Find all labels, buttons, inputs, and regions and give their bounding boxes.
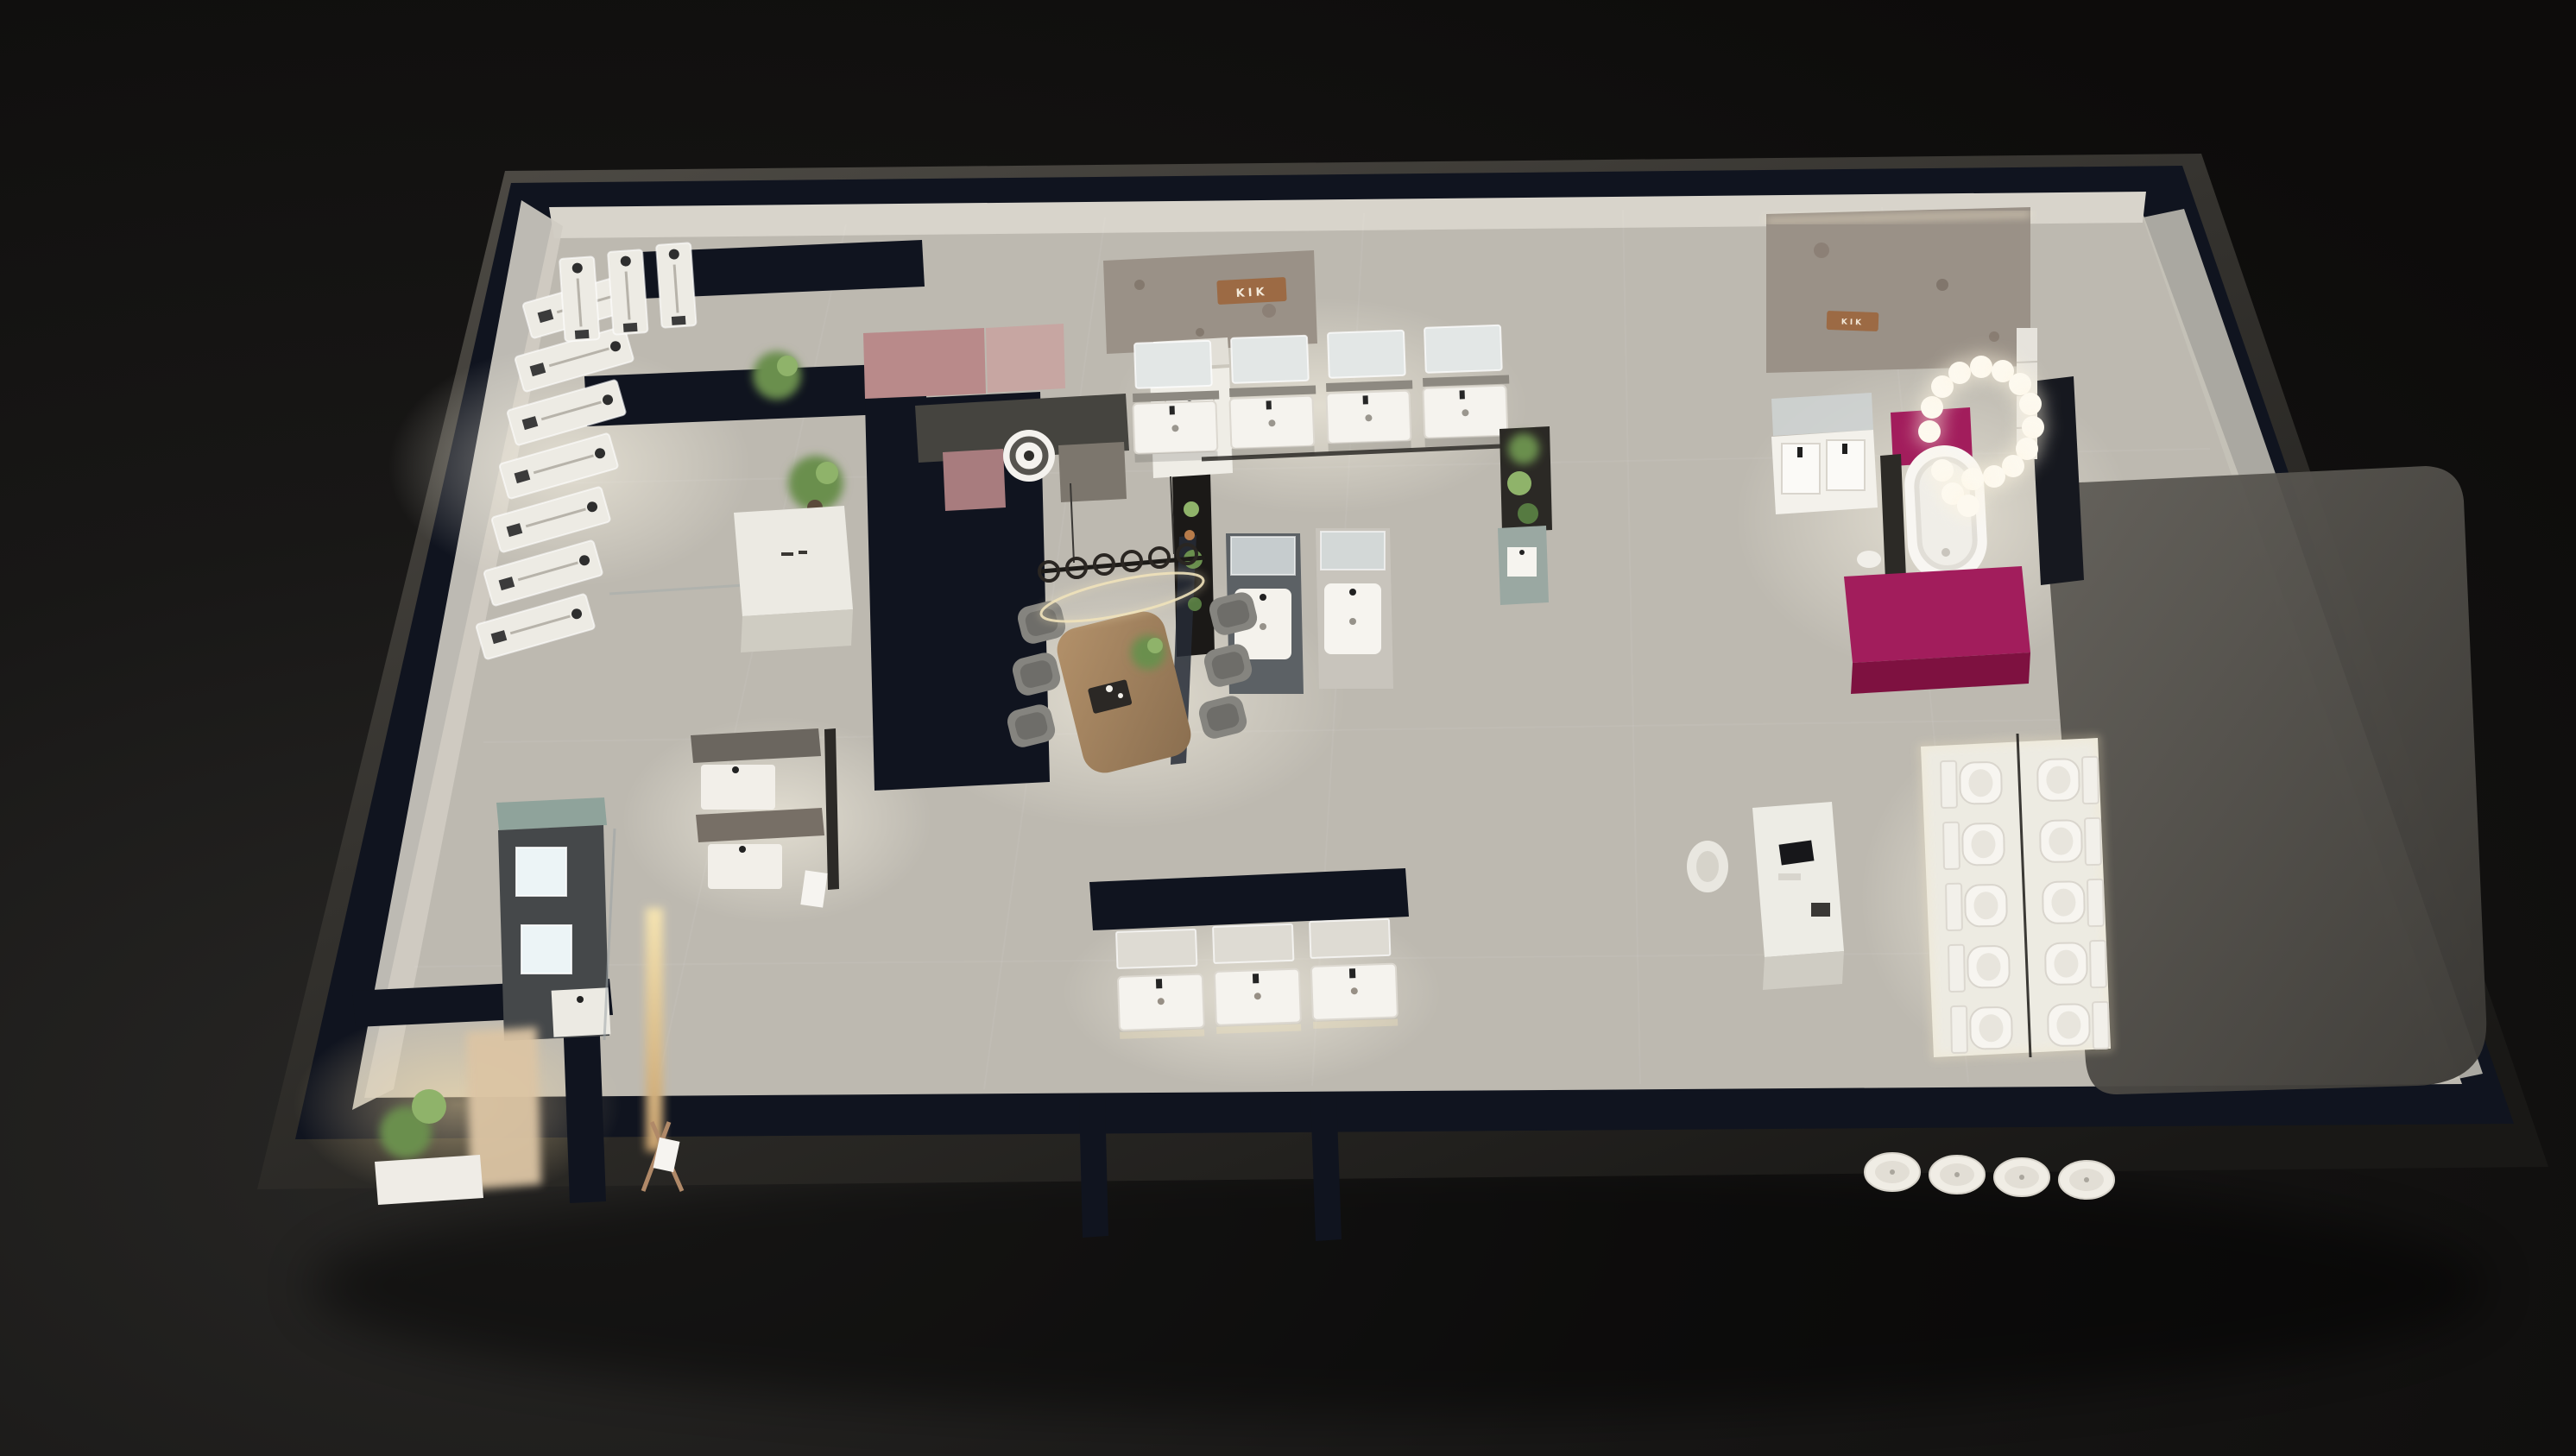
shower-panel-row-north xyxy=(559,243,697,342)
faucet xyxy=(1266,400,1272,409)
toilet-cistern xyxy=(2090,941,2106,987)
towel xyxy=(800,870,827,907)
led-mirror xyxy=(1116,930,1196,968)
pedestal-basin xyxy=(2059,1161,2114,1199)
led-mirror xyxy=(1231,336,1309,383)
led-mirror xyxy=(516,848,566,896)
led-mirror xyxy=(1231,537,1295,575)
faucet xyxy=(732,766,739,773)
toilet-cistern xyxy=(2085,818,2101,865)
toilet-display-area xyxy=(1921,734,2111,1057)
shower-valve xyxy=(623,323,638,332)
led-mirror xyxy=(1321,532,1385,570)
bubble-globe xyxy=(2022,416,2044,438)
washer-door-glass xyxy=(1024,451,1034,461)
vanity-display-unit xyxy=(1116,930,1204,1039)
stone-speckle xyxy=(1196,328,1204,337)
drain xyxy=(2084,1177,2089,1182)
plant-foliage xyxy=(412,1089,446,1124)
bubble-globe xyxy=(2019,393,2042,415)
brand-logo-text: KIK xyxy=(1841,318,1865,328)
dark-lounge-zone xyxy=(2047,466,2486,1094)
toilet-cistern xyxy=(2082,757,2099,804)
bubble-globe xyxy=(1983,465,2005,488)
table-plant xyxy=(1147,638,1163,653)
bubble-globe xyxy=(1957,495,1979,517)
desk-logo-mark xyxy=(799,551,807,554)
drain xyxy=(1260,623,1266,630)
stone-speckle xyxy=(1936,279,1948,291)
brand-plaque-north: KIK xyxy=(1216,277,1286,305)
bubble-globe xyxy=(1918,420,1941,443)
tray-cup xyxy=(1118,693,1123,698)
tub-drain xyxy=(1941,548,1950,557)
faucet xyxy=(1349,968,1355,978)
toilet-cistern xyxy=(1941,761,1957,808)
faucet xyxy=(1797,447,1803,457)
reception-desk-front xyxy=(741,609,853,652)
led-mirror xyxy=(1310,919,1390,958)
brand-plaque-bath-suite: KIK xyxy=(1827,311,1879,331)
toilet-cistern xyxy=(1948,945,1965,992)
stone-speckle xyxy=(1134,280,1145,290)
led-mirror xyxy=(1134,341,1212,388)
faucet xyxy=(1460,390,1465,399)
brand-logo-text: KIK xyxy=(1235,286,1268,300)
chair-seat xyxy=(1696,851,1719,882)
white-ledge-tub xyxy=(375,1155,483,1205)
cashier-desk-front xyxy=(1763,951,1844,990)
bubble-globe xyxy=(1931,459,1954,482)
pink-cabinet-front xyxy=(943,449,1006,511)
teal-vanity xyxy=(1498,526,1549,605)
plant-foliage xyxy=(1184,501,1199,517)
plant-foliage xyxy=(777,356,798,376)
stone-speckle xyxy=(1262,304,1276,318)
pedestal-basin xyxy=(1929,1156,1985,1194)
pink-feature-wall xyxy=(863,328,986,399)
shower-valve xyxy=(575,330,590,339)
reception-area xyxy=(734,506,853,652)
vanity-display-unit xyxy=(1131,341,1222,463)
faucet xyxy=(1363,395,1368,404)
basin xyxy=(552,987,611,1037)
dried-plant xyxy=(1184,530,1195,540)
desk-logo-mark xyxy=(781,552,793,556)
led-mirror xyxy=(521,925,571,974)
led-mirror xyxy=(1328,331,1405,378)
stone-speckle xyxy=(1989,331,1999,342)
faucet xyxy=(1519,550,1525,555)
magenta-platform-top xyxy=(1844,566,2030,663)
island-vanity-light xyxy=(1316,528,1393,689)
taupe-cabinet-front xyxy=(1058,442,1127,502)
mirror-band xyxy=(1771,393,1873,436)
pedestal-basin xyxy=(1994,1158,2049,1196)
toilet-cistern xyxy=(1946,884,1962,930)
chandelier-bubble xyxy=(1954,492,1982,520)
chandelier-bubble xyxy=(2017,390,2044,418)
bubble-globe xyxy=(1948,362,1971,384)
vanity-display-unit xyxy=(1421,325,1512,447)
wall-stub xyxy=(1079,1096,1108,1238)
plant-foliage xyxy=(1508,433,1539,464)
vanity-display-unit xyxy=(1324,331,1415,452)
bath-stool xyxy=(1857,551,1881,568)
shower-valve xyxy=(672,316,686,325)
toilet-cistern xyxy=(1951,1006,1967,1053)
shower-display-panel xyxy=(559,256,600,342)
led-mirror xyxy=(1213,924,1293,963)
south-vanity-row xyxy=(1116,919,1398,1039)
faucet xyxy=(1156,979,1162,988)
toilet-cistern xyxy=(2093,1002,2109,1049)
wall-stub xyxy=(1310,1093,1342,1241)
chandelier-bubble xyxy=(1916,418,1943,445)
tray-cup xyxy=(1106,685,1113,692)
sage-vanity-bay xyxy=(496,797,615,1041)
faucet xyxy=(577,996,584,1003)
faucet xyxy=(1349,589,1356,596)
reception-desk-top xyxy=(734,506,853,616)
backlit-wall-column xyxy=(646,908,663,1151)
toilet-cistern xyxy=(2087,879,2104,926)
showroom-3d-render: KIK KIK xyxy=(0,0,2576,1456)
sage-accent-wall xyxy=(496,797,607,830)
card-terminal xyxy=(1811,903,1830,917)
shelf-line xyxy=(2017,362,2037,362)
vanity-display-unit xyxy=(1213,924,1301,1034)
building-ground-shadow xyxy=(311,1157,2486,1415)
drain xyxy=(1890,1169,1895,1175)
faucet xyxy=(739,846,746,853)
plant-foliage xyxy=(816,462,838,484)
plant-foliage xyxy=(1507,471,1531,495)
stone-wall-bath-suite xyxy=(1766,207,2030,373)
render-canvas: KIK KIK xyxy=(0,0,2576,1456)
faucet xyxy=(1260,594,1266,601)
drain xyxy=(2019,1175,2024,1180)
vanity-display-unit xyxy=(1228,336,1318,457)
shower-display-panel xyxy=(608,249,648,335)
pedestal-basin xyxy=(1865,1153,1920,1191)
drain xyxy=(1349,618,1356,625)
keyboard xyxy=(1778,873,1801,880)
plant-foliage xyxy=(1518,503,1538,524)
vanity-display-unit xyxy=(1310,919,1398,1029)
faucet xyxy=(1170,406,1175,414)
toilet-cistern xyxy=(1943,823,1960,869)
bubble-globe xyxy=(1970,356,1992,378)
led-mirror xyxy=(1424,325,1502,373)
stone-speckle xyxy=(1814,243,1829,258)
drain xyxy=(1954,1172,1960,1177)
plant-bed xyxy=(1500,426,1552,533)
shower-display-panel xyxy=(656,243,697,328)
faucet xyxy=(1253,974,1259,983)
corner-room-wall xyxy=(563,1013,606,1203)
pink-feature-wall-light xyxy=(986,324,1065,393)
plant-foliage xyxy=(1188,597,1202,611)
faucet xyxy=(1842,444,1847,454)
